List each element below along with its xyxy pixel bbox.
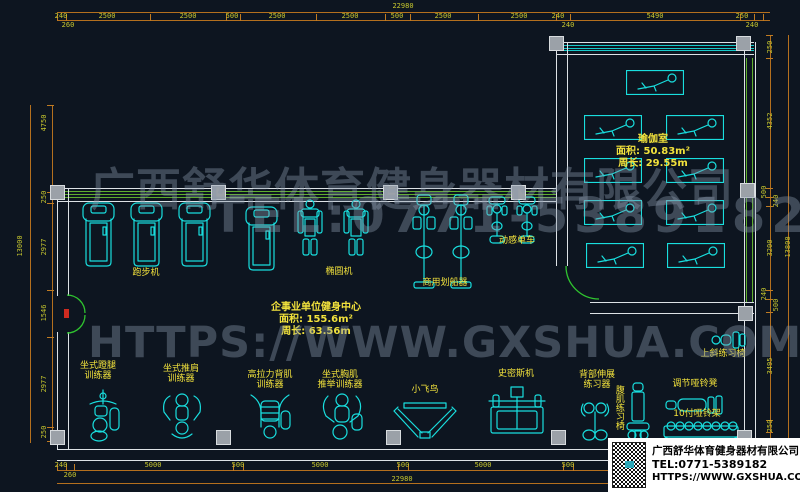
company-info-box: 广西舒华体育健身器材有限公司 TEL:0771-5389182 HTTPS://… — [608, 438, 800, 492]
back-extension-symbol — [577, 398, 613, 442]
wall-right-window — [746, 58, 753, 302]
dim-tick — [754, 14, 755, 21]
column — [736, 36, 751, 51]
dim-label: 240 — [55, 461, 68, 469]
dim-label: 2500 — [99, 12, 116, 20]
dim-label: 5000 — [475, 461, 492, 469]
yoga-mat-symbol — [586, 243, 644, 268]
dim-tick — [47, 203, 54, 204]
gym-room-name: 企事业单位健身中心 — [271, 302, 361, 314]
column — [50, 430, 65, 445]
label-chest-press: 坐式胸肌 推举训练器 — [317, 370, 362, 391]
dim-label: 4750 — [40, 115, 48, 132]
smith-machine-symbol — [487, 385, 547, 441]
wall-yoga-bottom — [590, 302, 754, 314]
dim-tick — [385, 14, 386, 21]
dim-label: 2500 — [511, 12, 528, 20]
dim-label: 5000 — [145, 461, 162, 469]
label-elliptical: 椭圆机 — [325, 267, 352, 277]
yoga-mat-symbol — [626, 70, 684, 95]
dim-label: 240 — [562, 21, 575, 29]
lat-pulldown-symbol — [247, 393, 293, 441]
dim-label: 2500 — [342, 12, 359, 20]
dim-label: 250 — [40, 426, 48, 439]
dim-label: 500 — [562, 461, 575, 469]
dim-tick — [763, 14, 764, 21]
label-cable-crossover: 小飞鸟 — [411, 385, 438, 395]
qr-code — [612, 442, 646, 488]
dim-label: 250 — [736, 12, 749, 20]
column — [386, 430, 401, 445]
company-website: HTTPS://WWW.GXSHUA.COM — [652, 472, 800, 485]
dim-tick — [240, 14, 241, 21]
dim-label: 500 — [397, 461, 410, 469]
dim-tick — [47, 427, 54, 428]
wall-left-upper — [57, 188, 69, 296]
dim-label: 4352 — [766, 113, 774, 130]
dim-line-top-segments — [57, 20, 770, 21]
dim-tick — [766, 35, 773, 36]
dim-label: 240 — [55, 12, 68, 20]
shoulder-press-symbol — [160, 390, 204, 442]
door-marker-red — [64, 309, 69, 318]
cable-crossover-symbol — [392, 399, 458, 441]
dim-label: 2977 — [40, 376, 48, 393]
dim-label: 2500 — [269, 12, 286, 20]
wall-yoga-top-window — [556, 42, 754, 55]
column — [50, 185, 65, 200]
company-info-text: 广西舒华体育健身器材有限公司 TEL:0771-5389182 HTTPS://… — [652, 445, 800, 484]
column — [549, 36, 564, 51]
label-treadmill: 跑步机 — [132, 268, 159, 278]
column — [551, 430, 566, 445]
ab-bench-symbol — [625, 381, 651, 441]
label-adjustable-bench: 调节哑铃凳 — [672, 379, 717, 389]
leg-press-symbol — [82, 388, 124, 443]
dim-label: 500 — [226, 12, 239, 20]
qr-logo-mark — [625, 461, 634, 468]
dim-label-left-total: 13000 — [16, 235, 24, 256]
watermark-website: HTTPS://WWW.GXSHUA.COM — [88, 318, 800, 368]
dim-label: 5000 — [312, 461, 329, 469]
column — [216, 430, 231, 445]
cad-floorplan-canvas: 22980 240 2500 2500 500 2500 2500 500 25… — [0, 0, 800, 492]
dim-tick — [74, 464, 75, 471]
dim-tick — [47, 337, 54, 338]
label-dumbbell-rack: 10付哑铃架 — [673, 409, 720, 419]
yoga-mat-symbol — [667, 243, 725, 268]
dim-tick — [570, 14, 571, 21]
chest-press-symbol — [320, 392, 364, 442]
dim-label: 260 — [64, 471, 77, 479]
label-smith-machine: 史密斯机 — [498, 369, 534, 379]
dim-label: 2977 — [40, 239, 48, 256]
dim-label: 5490 — [647, 12, 664, 20]
dim-tick — [47, 290, 54, 291]
dim-tick — [47, 105, 54, 106]
dim-label: 240 — [746, 21, 759, 29]
dim-tick — [316, 14, 317, 21]
dim-label: 240 — [760, 288, 768, 301]
dim-label: 2500 — [435, 12, 452, 20]
dim-label: 250 — [766, 420, 774, 433]
dim-line-left-segments — [52, 105, 53, 443]
dim-tick — [766, 58, 773, 59]
dim-tick — [766, 312, 773, 313]
yoga-room-name: 瑜伽室 — [616, 134, 690, 146]
dim-label: 250 — [766, 41, 774, 54]
company-telephone: TEL:0771-5389182 — [652, 458, 800, 472]
label-ab-bench: 腹肌练习椅 — [613, 385, 623, 430]
dim-label-top-total: 22980 — [392, 2, 413, 10]
dim-label: 250 — [40, 191, 48, 204]
watermark-telephone: TEL:0771-5389182 — [212, 188, 800, 244]
dim-label: 1546 — [40, 305, 48, 322]
dim-line-bottom-segments — [57, 470, 657, 471]
dim-line-left-overall — [30, 105, 31, 443]
dim-label: 260 — [62, 21, 75, 29]
company-name: 广西舒华体育健身器材有限公司 — [652, 445, 800, 458]
label-lat-pulldown: 高拉力背肌 训练器 — [247, 370, 292, 391]
dim-tick — [478, 14, 479, 21]
dim-label: 500 — [391, 12, 404, 20]
dim-label-bottom-total: 22980 — [391, 475, 412, 483]
dim-label: 500 — [232, 461, 245, 469]
dim-label: 2500 — [180, 12, 197, 20]
dim-label: 500 — [772, 299, 780, 312]
label-rower: 商用划船器 — [422, 278, 467, 288]
dim-tick — [410, 14, 411, 21]
dim-label: 240 — [552, 12, 565, 20]
label-back-extension: 背部伸展 练习器 — [579, 370, 615, 391]
dim-tick — [150, 14, 151, 21]
yoga-room-door — [560, 264, 602, 304]
